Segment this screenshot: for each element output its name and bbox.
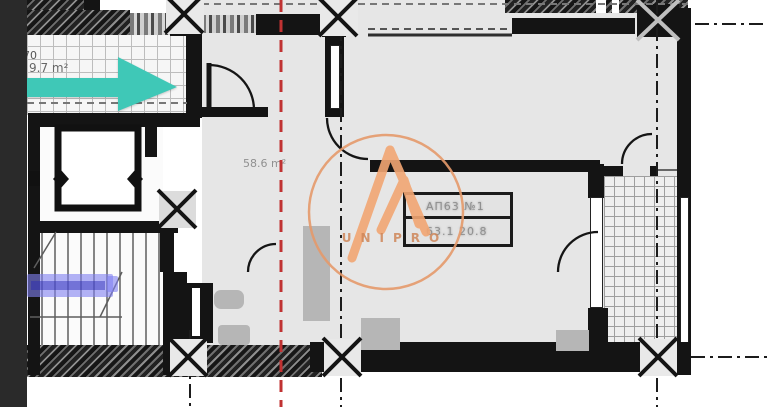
watermark-text: UNIPRO xyxy=(330,231,460,245)
watermark-layer xyxy=(0,0,770,407)
sidebar-dark-bar xyxy=(0,0,27,407)
floor-plan-viewport[interactable]: АП63 №1 63.1 20.8 70 9.7 m² 58.6 m² xyxy=(0,0,770,407)
